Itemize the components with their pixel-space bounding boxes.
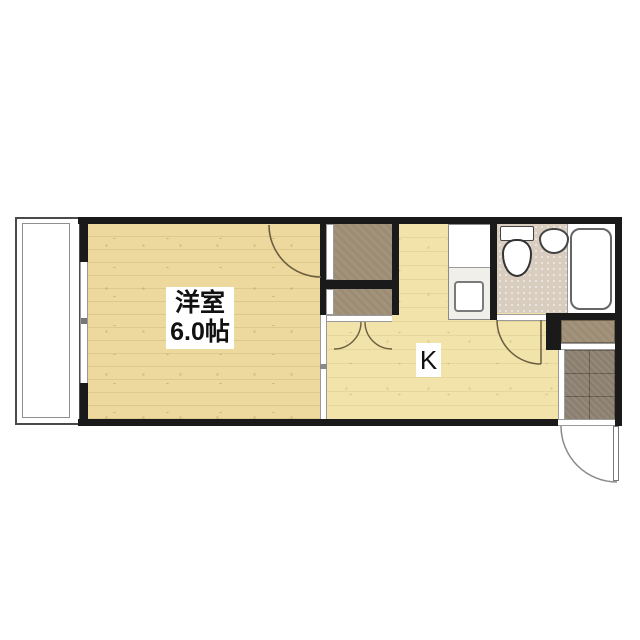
entry-door-leaf — [613, 426, 619, 481]
closet-door-leaf — [326, 224, 334, 280]
stove — [454, 281, 484, 312]
kitchen-label-text: K — [420, 345, 437, 376]
room-kitchen-sliding-partition-lower — [320, 369, 327, 419]
western-room-label: 洋室 6.0帖 — [166, 287, 234, 349]
wall-top — [78, 217, 622, 224]
wall-kitchen-bathroom — [490, 217, 497, 320]
entry-door-arc — [561, 426, 617, 482]
western-room-size: 6.0帖 — [170, 318, 230, 347]
window-sash-joint — [81, 318, 87, 324]
bathroom-door-threshold — [497, 314, 546, 321]
closet-upper — [334, 224, 392, 280]
shoe-cabinet — [561, 320, 615, 343]
wall-closet-right — [392, 217, 399, 315]
wall-left-lower — [80, 383, 88, 425]
kitchen-label: K — [416, 343, 441, 377]
balcony-inner-line — [22, 223, 70, 418]
wall-entrance-stub — [546, 313, 561, 350]
closet-lower-track — [326, 289, 334, 315]
closet-lower — [334, 289, 392, 315]
wall-room-closet — [320, 217, 326, 315]
wall-bottom — [78, 419, 558, 426]
room-kitchen-sliding-partition-upper — [320, 315, 327, 364]
bathtub — [570, 228, 612, 310]
entrance-step-edge — [558, 350, 565, 419]
entrance-tile — [565, 350, 615, 419]
wall-right — [615, 217, 622, 426]
closet-threshold — [326, 315, 392, 322]
sliding-window — [80, 262, 88, 383]
entry-door-threshold — [558, 419, 615, 426]
western-room-name: 洋室 — [175, 289, 225, 318]
shoe-cabinet-front — [561, 343, 615, 350]
wall-closet-divider — [320, 280, 399, 289]
kitchen-counter — [448, 224, 491, 320]
floor-plan: 洋室 6.0帖 K — [0, 0, 640, 640]
wall-left-upper — [80, 217, 88, 262]
